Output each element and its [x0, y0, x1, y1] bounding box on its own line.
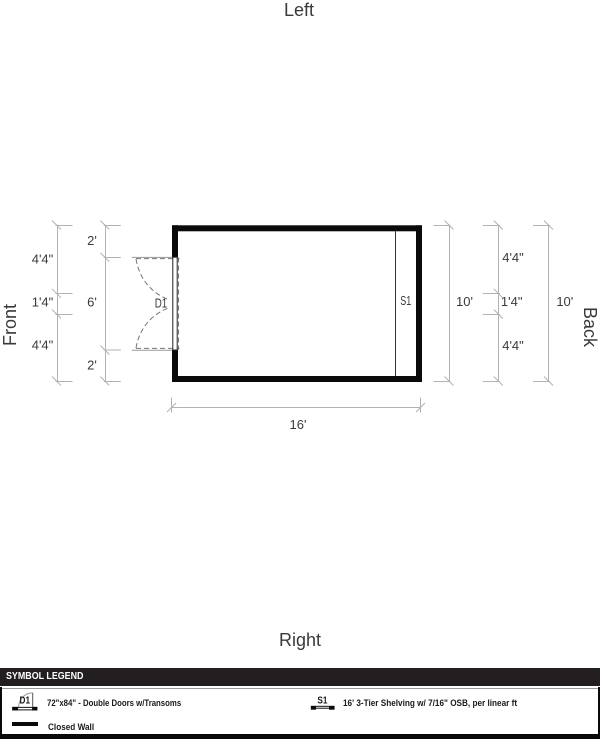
svg-text:1'4": 1'4"	[501, 294, 523, 309]
svg-text:10': 10'	[456, 294, 473, 309]
svg-text:6': 6'	[87, 295, 97, 310]
svg-text:4'4": 4'4"	[502, 338, 524, 353]
svg-text:D1: D1	[20, 695, 31, 706]
svg-text:D1: D1	[155, 296, 168, 311]
svg-text:10': 10'	[556, 294, 573, 309]
svg-text:2': 2'	[87, 358, 97, 373]
svg-text:S1: S1	[317, 695, 327, 706]
svg-text:4'4": 4'4"	[32, 252, 54, 267]
svg-text:1'4": 1'4"	[32, 295, 54, 310]
svg-text:4'4": 4'4"	[32, 338, 54, 353]
svg-text:4'4": 4'4"	[502, 250, 524, 265]
svg-text:S1: S1	[400, 293, 411, 308]
svg-text:2': 2'	[87, 233, 97, 248]
svg-text:16': 16'	[290, 417, 307, 432]
